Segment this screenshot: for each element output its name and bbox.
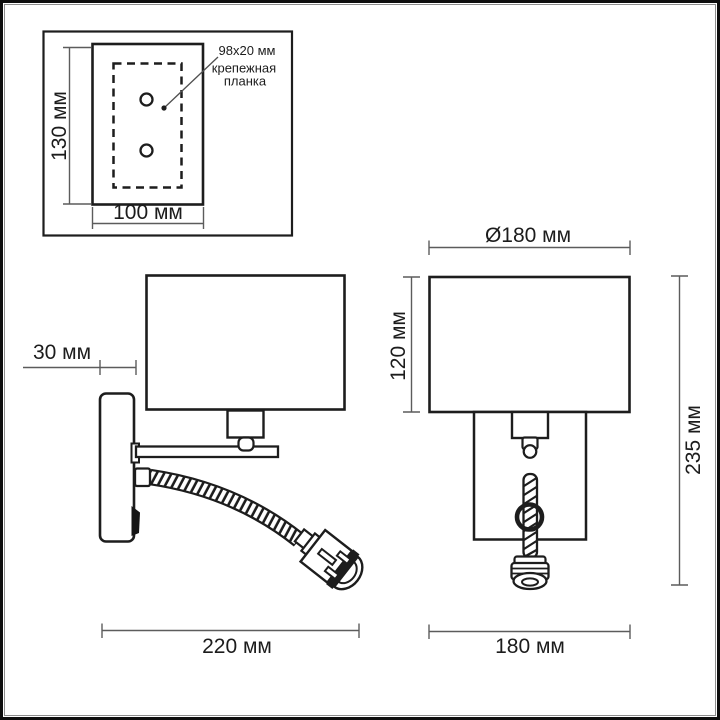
callout-leader-dot — [161, 105, 166, 110]
front-socket — [512, 412, 548, 438]
front-socket-ball — [524, 445, 537, 458]
side-socket-nipple — [239, 438, 254, 451]
dim-180-label: 180 мм — [495, 635, 565, 658]
dimension-180mm: 180 мм — [429, 625, 630, 659]
screw-hole-top — [141, 94, 153, 106]
dimension-diameter-180mm: Ø180 мм — [429, 224, 630, 255]
dimension-120mm: 120 мм — [387, 277, 420, 412]
front-shade — [430, 277, 630, 412]
side-wall-plate — [100, 394, 134, 542]
side-switch — [132, 506, 141, 536]
dim-130-label: 130 мм — [48, 91, 71, 161]
dim-d180-label: Ø180 мм — [485, 224, 571, 247]
dim-100-label: 100 мм — [113, 201, 183, 224]
mounting-plate-inset: 98x20 мм крепежная планка 130 мм 100 мм — [44, 32, 293, 236]
callout-size-label: 98x20 мм — [219, 43, 276, 58]
dimension-235mm: 235 мм — [671, 276, 705, 585]
backplate-outline — [93, 44, 204, 205]
side-arm — [136, 447, 278, 458]
lamp-side-view: 30 мм 220 мм — [23, 276, 371, 659]
side-shade — [147, 276, 345, 410]
pull-cord-knob — [512, 557, 549, 590]
dim-120-label: 120 мм — [387, 311, 410, 381]
dimension-220mm: 220 мм — [102, 624, 359, 659]
dim-30-label: 30 мм — [33, 341, 91, 364]
callout-word2-label: планка — [224, 74, 267, 89]
gooseneck-connector — [135, 469, 150, 487]
dimension-30mm: 30 мм — [23, 341, 136, 375]
lamp-front-view: Ø180 мм 120 мм 235 мм 180 мм — [387, 224, 705, 658]
dim-220-label: 220 мм — [202, 635, 272, 658]
lamp-dimension-drawing: 98x20 мм крепежная планка 130 мм 100 мм — [0, 0, 720, 720]
technical-drawing-sheet: 98x20 мм крепежная планка 130 мм 100 мм — [0, 0, 720, 720]
dim-235-label: 235 мм — [682, 405, 705, 475]
screw-hole-bottom — [141, 145, 153, 157]
gooseneck-tube-hatch — [150, 477, 299, 540]
side-socket — [228, 411, 264, 438]
